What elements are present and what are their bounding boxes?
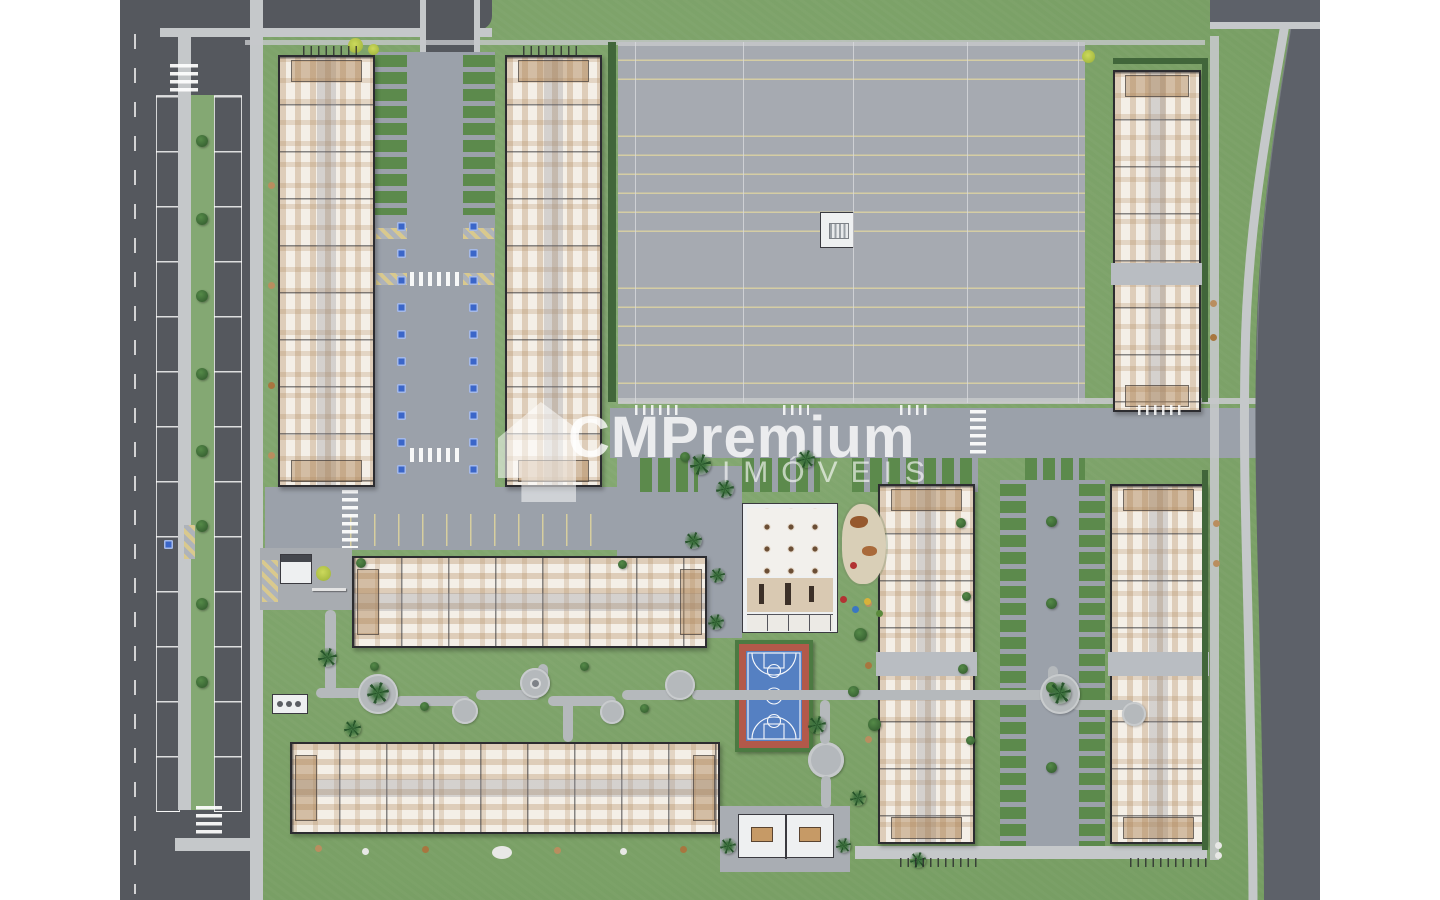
handicap-space	[469, 438, 478, 447]
garden-ornament	[1210, 300, 1217, 307]
paver-parking-e-left	[1000, 484, 1026, 854]
clubhouse	[742, 503, 838, 633]
handicap-space	[397, 249, 406, 258]
crosswalk-marks	[635, 405, 680, 415]
playground-sandbox	[842, 504, 886, 584]
street-northeast-stub	[1210, 0, 1320, 22]
crosswalk-south	[196, 806, 222, 834]
palm-tree	[344, 720, 361, 737]
parking-aisle-3	[618, 350, 1085, 382]
palm-tree	[716, 480, 734, 498]
palm-tree	[367, 682, 389, 704]
crosswalk-marks	[1138, 405, 1186, 415]
gatehouse-roof	[281, 555, 311, 562]
median-tree	[196, 520, 208, 532]
bbq-table	[751, 827, 773, 842]
kiosk-roof	[829, 223, 849, 239]
garden-pond	[492, 846, 512, 859]
median-tree	[196, 598, 208, 610]
building-6	[352, 556, 707, 648]
median-tree	[196, 213, 208, 225]
median-tree	[196, 445, 208, 457]
hedge-lot-west	[608, 42, 616, 402]
palm-tree	[808, 716, 826, 734]
handicap-space	[397, 330, 406, 339]
garden-ornament	[1213, 560, 1220, 567]
street-hatch-zone	[184, 525, 195, 559]
median-tree	[196, 135, 208, 147]
tree	[580, 662, 589, 671]
street-west-parking-row-1	[156, 95, 180, 812]
promenade-spur	[821, 776, 831, 808]
handicap-space	[469, 222, 478, 231]
bike-rack-row	[1130, 858, 1208, 867]
fountain	[532, 680, 539, 687]
median-tree	[196, 290, 208, 302]
shrub	[1082, 50, 1095, 63]
bbq-table	[799, 827, 821, 842]
plaza-node	[600, 700, 624, 724]
utility-unit	[295, 701, 301, 707]
west-road-parking-stripes	[350, 514, 612, 546]
circular-plaza	[808, 742, 844, 778]
gym-equipment	[759, 584, 764, 604]
clubhouse-restrooms	[747, 614, 833, 631]
tree	[1046, 762, 1057, 773]
plaza-node	[1122, 702, 1146, 726]
crosswalk-west-road	[342, 490, 358, 548]
handicap-space	[469, 357, 478, 366]
handicap-space	[469, 276, 478, 285]
building-1	[278, 55, 375, 487]
tree	[958, 664, 968, 674]
street-east	[1180, 0, 1320, 900]
tree	[1046, 598, 1057, 609]
bbq-kiosk-divider	[785, 815, 787, 859]
handicap-space	[469, 249, 478, 258]
garden-ornament	[268, 382, 275, 389]
promenade-spur	[563, 700, 573, 742]
palm-tree	[690, 454, 711, 475]
handicap-space	[397, 384, 406, 393]
handicap-space	[469, 330, 478, 339]
paver-parking-nw-right	[463, 55, 495, 215]
palm-tree	[318, 648, 337, 667]
handicap-space-street	[164, 540, 173, 549]
crosswalk-nw-aisle-1	[410, 272, 460, 286]
hatch-nw-4	[463, 273, 494, 285]
tree	[966, 736, 975, 745]
garden-ornament	[268, 182, 275, 189]
handicap-space	[469, 303, 478, 312]
garden-ornament	[1215, 842, 1222, 849]
boom-gate	[312, 588, 346, 591]
gatehouse	[280, 554, 312, 584]
gate-hatch	[262, 560, 278, 602]
garden-ornament	[840, 596, 847, 603]
promenade-segment	[692, 690, 1064, 700]
garden-ornament	[268, 452, 275, 459]
parking-lot-line	[967, 42, 968, 403]
handicap-space	[397, 276, 406, 285]
utility-unit	[286, 701, 292, 707]
tree	[854, 628, 867, 641]
parking-lot-kiosk	[820, 212, 854, 248]
playground-equipment	[862, 546, 877, 556]
tree	[370, 662, 379, 671]
street-west-parking-row-2	[214, 95, 242, 812]
shrub	[368, 44, 379, 55]
parking-lot-line	[743, 42, 744, 403]
palm-tree	[797, 450, 815, 468]
median-walkway	[178, 95, 191, 810]
driveway-north	[426, 0, 474, 54]
sidewalk-northeast-stub	[1210, 22, 1320, 29]
screenshot-root: { "watermark": { "brand": "CMPremium", "…	[0, 0, 1440, 900]
sidewalk-west	[250, 0, 263, 900]
palm-tree	[1049, 682, 1071, 704]
crosswalk-north	[170, 64, 198, 92]
clubhouse-party-hall	[747, 508, 833, 576]
handicap-space	[469, 384, 478, 393]
garden-ornament	[1210, 334, 1217, 341]
palm-tree	[685, 532, 702, 549]
site-plan: CMPremium IMÓVEIS	[120, 0, 1320, 900]
tree	[356, 558, 366, 568]
garden-ornament	[362, 848, 369, 855]
palm-tree	[710, 568, 725, 583]
plaza-node	[665, 670, 695, 700]
crosswalk-marks	[900, 405, 930, 415]
handicap-space	[397, 465, 406, 474]
median-tree	[196, 368, 208, 380]
watermark-subtitle: IMÓVEIS	[568, 456, 938, 490]
handicap-space	[397, 303, 406, 312]
parking-aisle-1	[618, 95, 1085, 130]
handicap-space	[397, 411, 406, 420]
clubhouse-gym	[747, 578, 833, 612]
building-7	[290, 742, 720, 834]
paver-parking-nw-left	[375, 55, 407, 215]
bbq-kiosk	[738, 814, 834, 858]
palm-tree	[850, 790, 866, 806]
bike-rack-row	[523, 46, 578, 55]
tree	[640, 704, 649, 713]
utility-pad	[272, 694, 308, 714]
playground-toy	[850, 562, 857, 569]
handicap-space	[469, 465, 478, 474]
parking-aisle-2	[618, 247, 1085, 280]
tree	[868, 718, 881, 731]
bike-rack-row	[900, 858, 978, 867]
garden-ornament	[1213, 520, 1220, 527]
playground-equipment	[850, 516, 868, 528]
garden-ornament	[422, 846, 429, 853]
handicap-space	[397, 222, 406, 231]
palm-tree	[708, 614, 724, 630]
tree	[420, 702, 429, 711]
tree	[1046, 516, 1057, 527]
crosswalk-marks	[783, 405, 809, 415]
gate-bush	[316, 566, 331, 581]
garden-ornament	[864, 598, 871, 605]
garden-ornament	[865, 736, 872, 743]
garden-ornament	[865, 662, 872, 669]
handicap-space	[397, 438, 406, 447]
garden-ornament	[852, 606, 859, 613]
garden-ornament	[876, 610, 883, 617]
tree	[956, 518, 966, 528]
garden-ornament	[268, 282, 275, 289]
paver-parking-e-right	[1079, 484, 1105, 854]
hatch-nw-2	[463, 228, 494, 239]
median-tree	[196, 676, 208, 688]
street-west-centerline	[134, 34, 136, 894]
parking-lot-line	[853, 42, 854, 403]
gym-equipment	[809, 586, 814, 602]
utility-unit	[277, 701, 283, 707]
garden-ornament	[1215, 852, 1222, 859]
tree	[618, 560, 627, 569]
crosswalk-main-road	[970, 410, 986, 456]
tree	[962, 592, 971, 601]
palm-tree	[720, 838, 736, 854]
parking-lot-line	[1078, 42, 1079, 403]
crosswalk-nw-aisle-2	[410, 448, 460, 462]
tree	[848, 686, 859, 697]
lot-north-curb	[618, 42, 1085, 46]
garden-ornament	[554, 847, 561, 854]
tree	[680, 452, 690, 462]
sidewalk-southwest	[175, 838, 263, 851]
gym-equipment	[785, 583, 791, 605]
handicap-space	[469, 411, 478, 420]
garden-ornament	[680, 846, 687, 853]
palm-tree	[836, 838, 851, 853]
garden-ornament	[620, 848, 627, 855]
parking-lot-line	[635, 42, 636, 403]
garden-ornament	[315, 845, 322, 852]
plaza-node	[452, 698, 478, 724]
handicap-space	[397, 357, 406, 366]
bike-rack-row	[303, 46, 358, 55]
